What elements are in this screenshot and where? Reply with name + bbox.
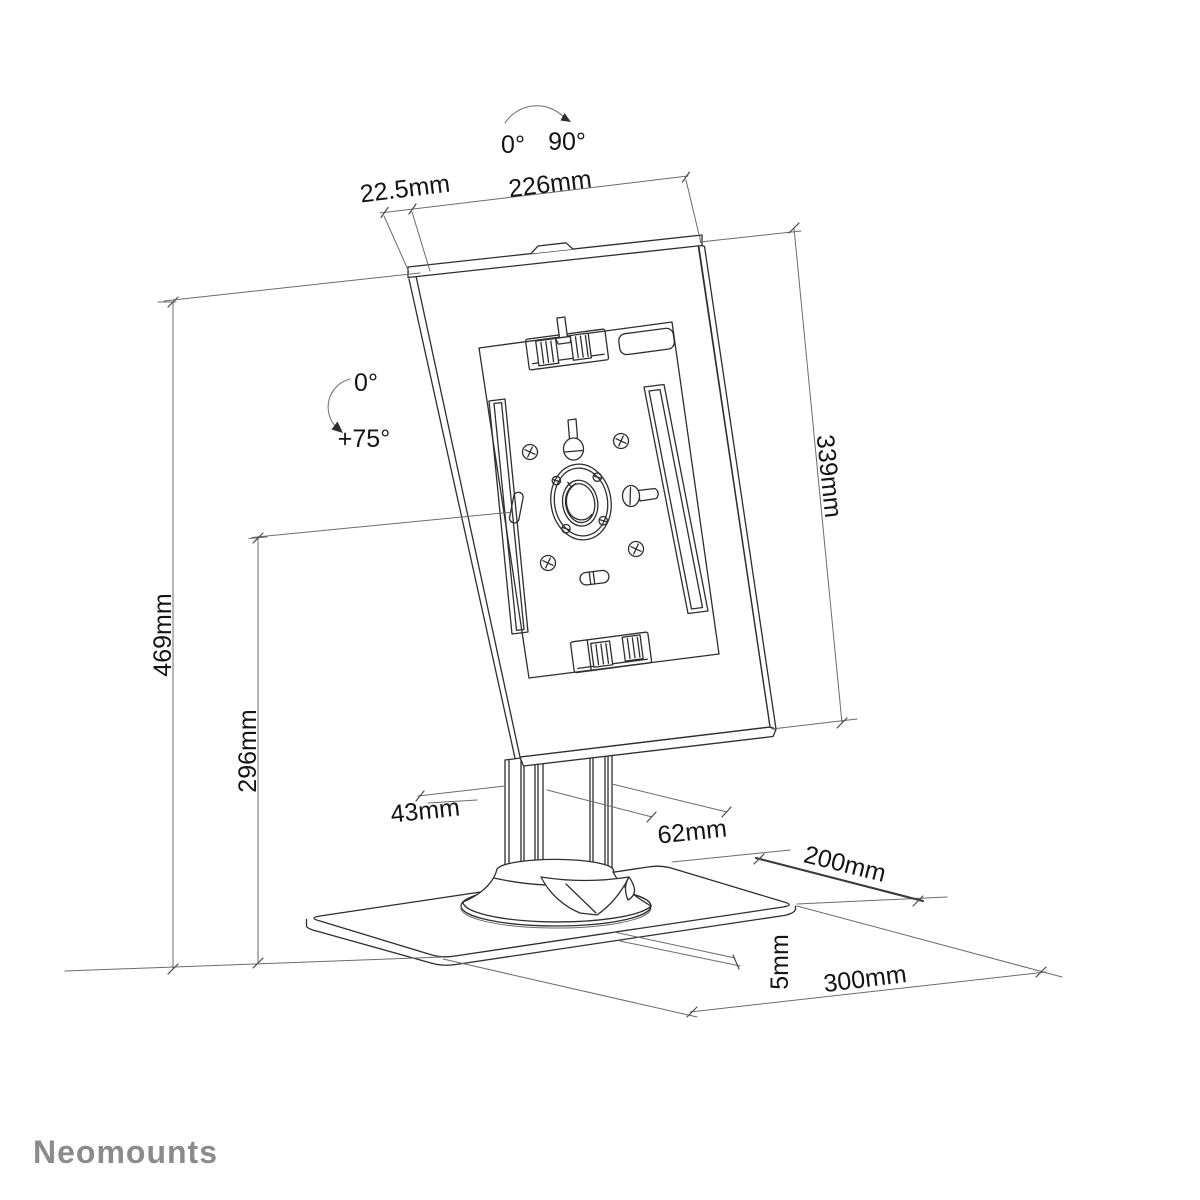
dimension-base-thickness: 5mm — [614, 932, 794, 990]
extension-line — [614, 932, 740, 966]
dim-label-pole-width: 62mm — [656, 814, 728, 849]
thumbscrew-head-slot — [630, 488, 631, 505]
enclosure-front-face — [416, 244, 770, 757]
dim-label-enclosure-height: 339mm — [811, 433, 848, 519]
brand-logo: Neomounts — [33, 1134, 218, 1170]
dim-label-base-thickness: 5mm — [766, 934, 794, 990]
rotation-annotation: 0° 90° — [501, 106, 586, 159]
pin-head — [564, 438, 584, 460]
tilt-to-label: +75° — [338, 425, 390, 453]
dim-label-pole-depth: 43mm — [389, 793, 461, 828]
base-dome — [461, 859, 651, 928]
tilt-from-label: 0° — [354, 369, 378, 397]
dim-label-total-height: 469mm — [149, 593, 177, 676]
dim-label-base-width: 300mm — [822, 960, 908, 998]
thumbscrew-shaft — [638, 489, 658, 502]
dim-label-pivot-height: 296mm — [234, 709, 262, 792]
rotation-arrowhead-icon — [561, 113, 572, 122]
tablet-enclosure — [408, 235, 776, 766]
drawing-page: 22.5mm 226mm 0° 90° 0° +75° 469mm — [0, 0, 1200, 1200]
top-latch-pin — [557, 317, 568, 338]
dimension-total-height: 469mm — [149, 273, 420, 974]
extension-line — [158, 273, 420, 302]
desk-baseline — [65, 957, 443, 971]
rotation-arc — [505, 106, 566, 123]
tilt-annotation: 0° +75° — [328, 369, 390, 453]
stand-pole — [505, 747, 612, 872]
dim-tick — [733, 955, 739, 969]
pin-shaft — [568, 419, 578, 439]
rotation-to-label: 90° — [548, 128, 586, 156]
tilt-arc — [328, 379, 350, 428]
technical-drawing: 22.5mm 226mm 0° 90° 0° +75° 469mm — [0, 0, 1200, 1200]
rotation-from-label: 0° — [501, 131, 525, 159]
top-latch-pin-flange — [556, 336, 573, 344]
dim-label-offset: 22.5mm — [358, 170, 451, 209]
dim-label-width: 226mm — [507, 165, 593, 203]
